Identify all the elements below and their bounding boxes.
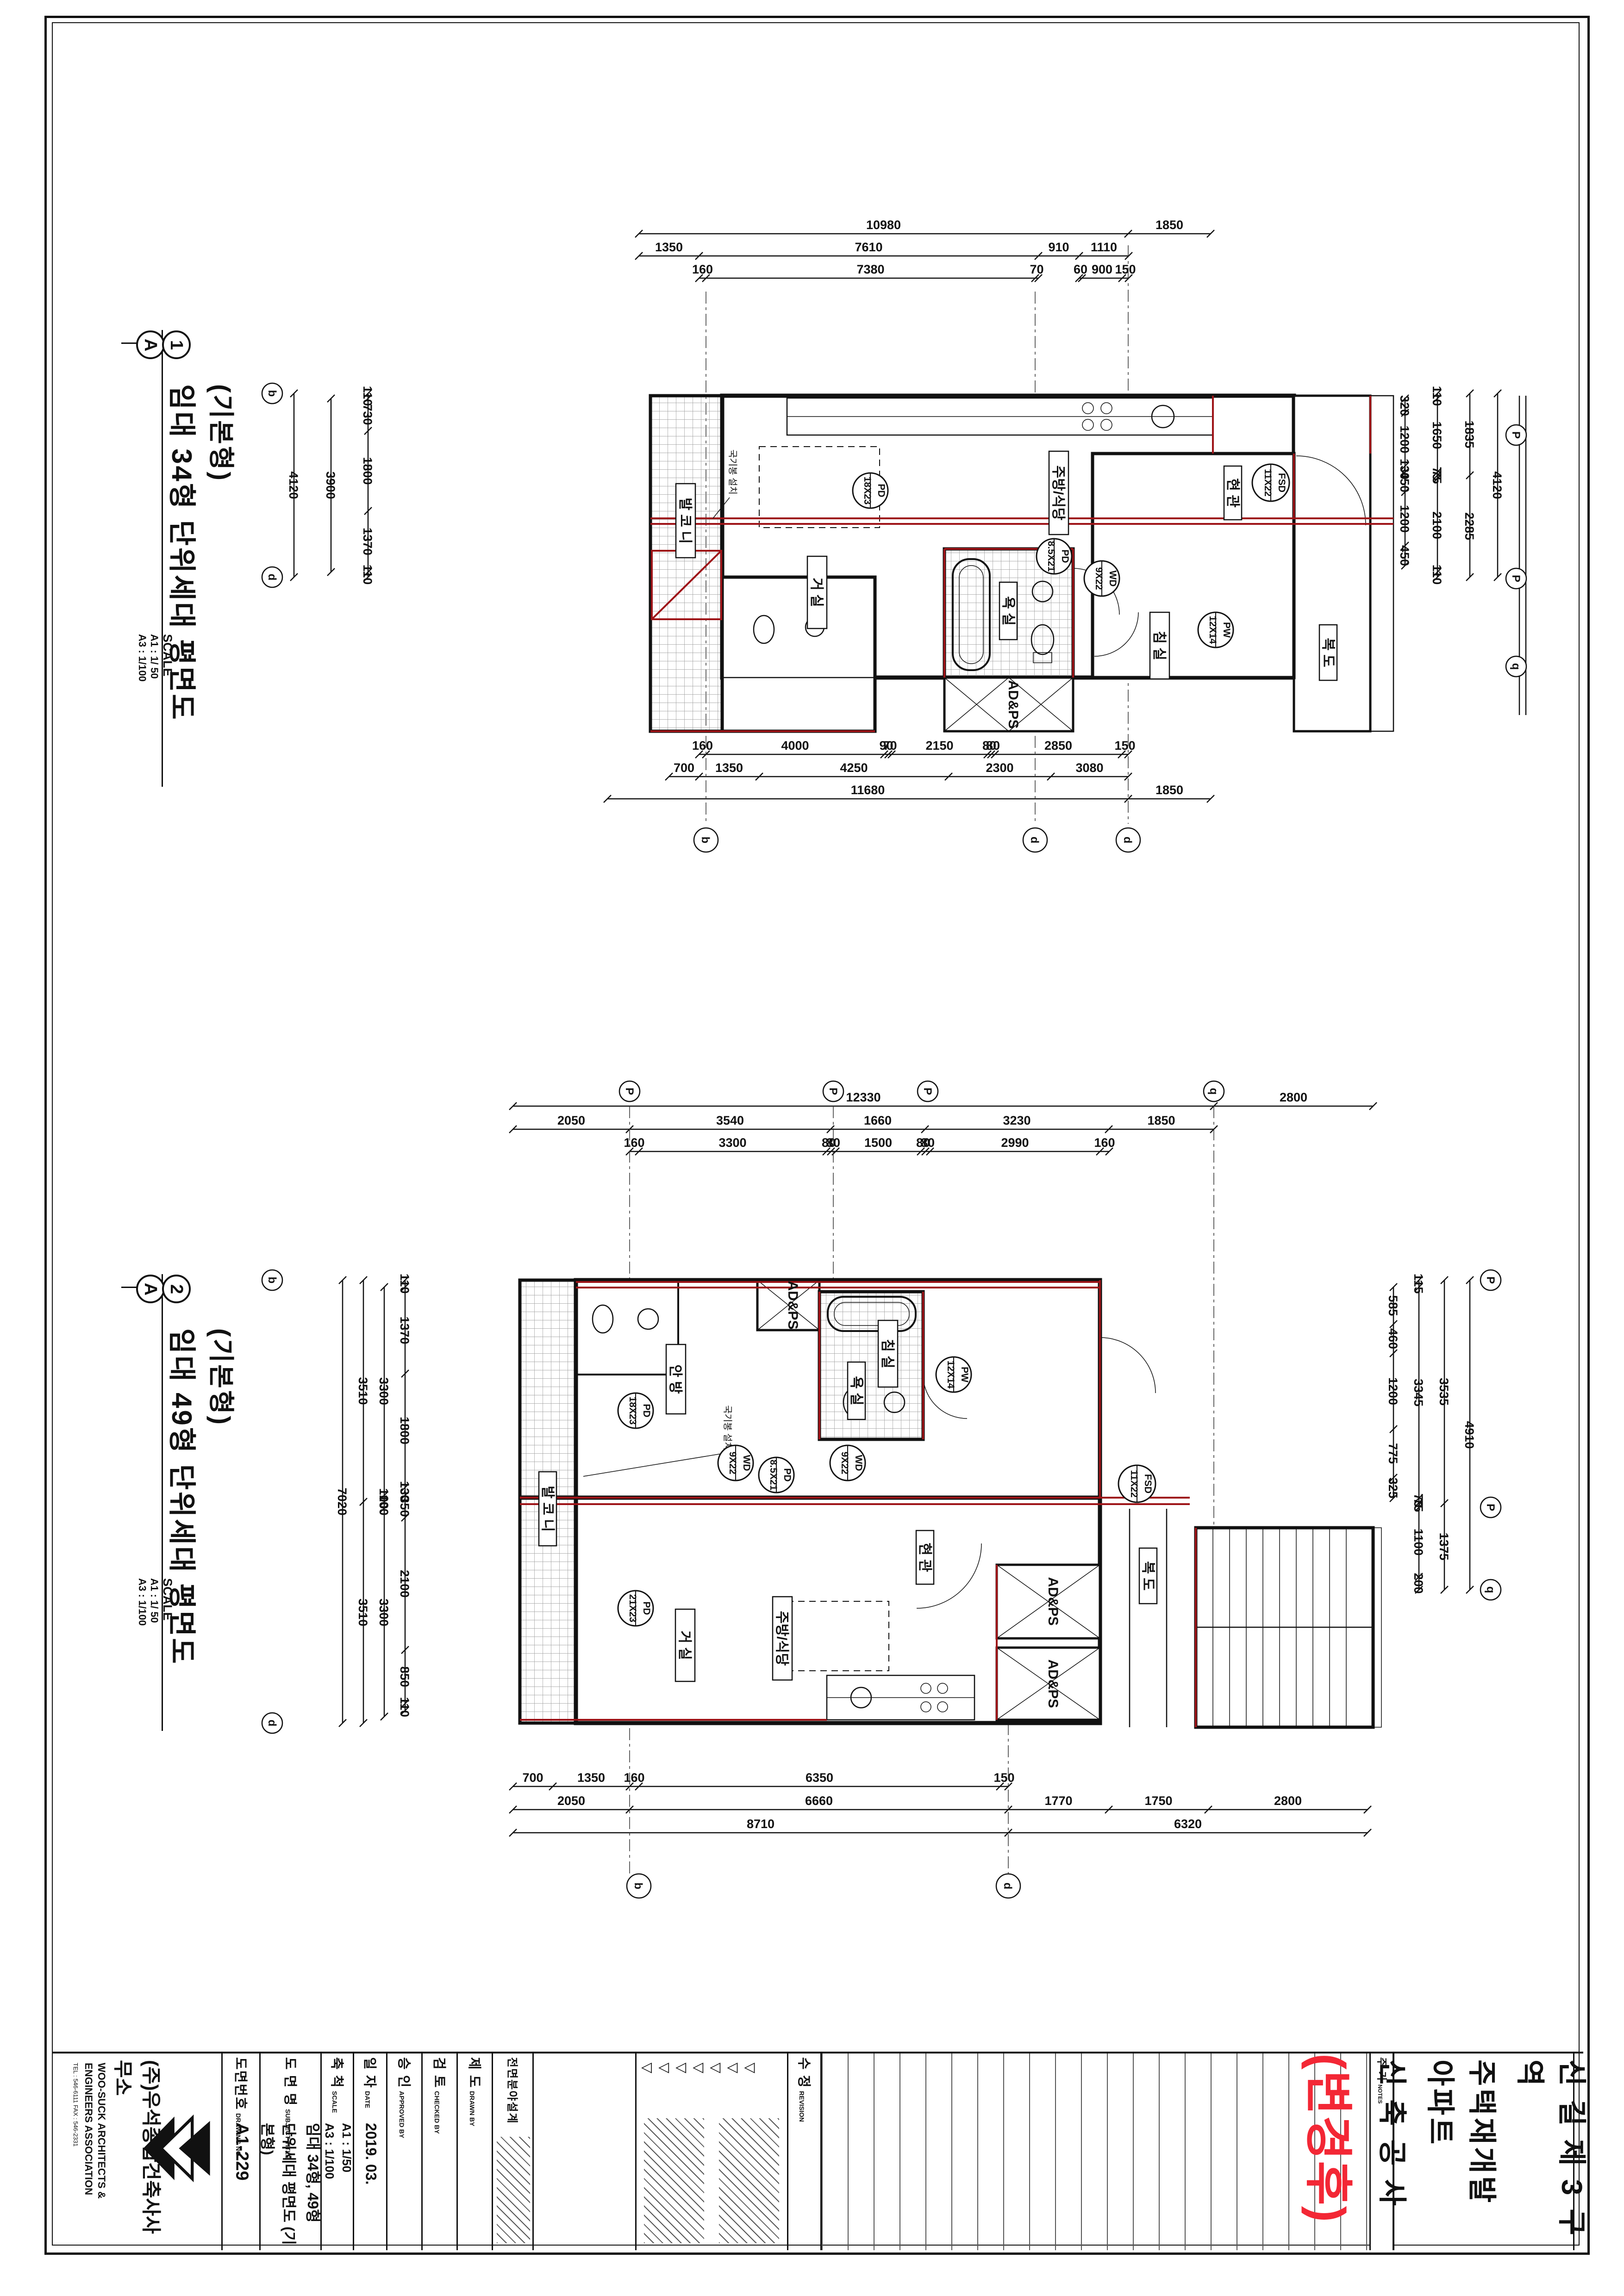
balcony-area	[650, 396, 722, 731]
bubble-letter: b	[266, 1277, 278, 1284]
plan1-scale-a1: A1 : 1/ 50	[148, 634, 160, 791]
grid-bubble: b	[262, 383, 282, 404]
discipline-label: 전면분야설계	[506, 2057, 518, 2124]
field-eng: SCALE	[331, 2091, 338, 2113]
window-tag: 8.5X21PD	[759, 1457, 794, 1493]
grid-bubble: b	[262, 1270, 282, 1290]
grid-bubble: P	[1506, 568, 1526, 589]
field-value: 2019. 03.	[360, 2123, 382, 2184]
field-header: 승 인APPROVED BY	[395, 2057, 415, 2138]
dim-label: 1850	[1156, 218, 1183, 232]
dim-label: 1350	[715, 761, 743, 775]
plan2-dims-top2: 20503540166032301850	[509, 1114, 1218, 1133]
bubble-letter: P	[921, 1088, 934, 1095]
plan1-detail-number-text: 1	[166, 340, 186, 349]
room-label-text: 발 코 니	[677, 498, 693, 543]
bubble-letter: b	[699, 837, 712, 844]
tag-size: 9X22	[727, 1451, 738, 1474]
room-label-entry: 현 관	[1224, 466, 1242, 520]
field-eng: REVISION	[798, 2091, 806, 2122]
plan2-dims-top3: 16033008080150080802990160	[624, 1136, 1115, 1155]
bubble-letter: d	[1001, 1883, 1014, 1890]
dim-label: 1660	[864, 1114, 892, 1127]
door-tag: 11X22FSD	[1118, 1465, 1156, 1502]
plan2-dims-right4: 4910	[1462, 1276, 1476, 1593]
room-label-text: 현 관	[1225, 478, 1240, 508]
revision-marks-cell: ◁◁◁◁◁◁◁	[635, 2053, 788, 2250]
dim-label: 585	[1386, 1295, 1400, 1316]
flagpole-note: 국기봉 설치	[722, 1405, 733, 1450]
grid-bubble: d	[1023, 828, 1047, 852]
dim-label: 1370	[361, 528, 375, 555]
dim-label: 2100	[398, 1570, 412, 1598]
dim-label: 6660	[805, 1794, 833, 1808]
shaft-label: AD&PS	[785, 1281, 800, 1329]
room-label-text: 주방/식당	[774, 1611, 789, 1666]
dim-label: 110	[398, 1274, 412, 1294]
bubble-letter: q	[1484, 1587, 1497, 1593]
company-cell: TEL : 546-6111 FAX : 546-2331 ENGINEERS …	[52, 2053, 221, 2250]
dim-label: 8710	[747, 1817, 775, 1831]
bubble-letter: P	[1484, 1276, 1497, 1284]
plan2-floor-plan: 123302800 20503540166032301850 160330080…	[259, 1078, 1528, 1967]
dim-label: 1800	[398, 1417, 412, 1444]
dim-label: 450	[1398, 545, 1412, 566]
dim-label: 900	[1092, 262, 1112, 276]
dim-label: 12330	[846, 1090, 881, 1104]
project-name-cell: 신 길 제 3 구 역 주택재개발 아파트 신 축 공 사	[1393, 2053, 1575, 2250]
bubble-letter: P	[827, 1088, 839, 1095]
door-tag: 11X22FSD	[1252, 464, 1289, 501]
bubble-letter: d	[1121, 837, 1134, 844]
dim-label: 1100	[1412, 1529, 1425, 1556]
bathroom	[819, 1292, 923, 1439]
revision-header-cell: 수 정REVISION	[787, 2053, 822, 2250]
tag-size: 11X22	[1262, 469, 1273, 497]
scale-a3: A3 : 1/100	[322, 2123, 337, 2179]
window-tag: 18X23PD	[618, 1393, 653, 1428]
field-header: 전면분야설계	[506, 2057, 522, 2124]
room-label-entry: 현 관	[916, 1531, 934, 1584]
tag-code: FSD	[1276, 473, 1287, 492]
dim-label: 1500	[864, 1136, 892, 1150]
dim-label: 1350	[655, 240, 683, 254]
dim-label: 775	[1386, 1443, 1400, 1464]
grid-bubble: P	[823, 1081, 843, 1101]
room-label-kitchen: 주방/식당	[773, 1597, 792, 1680]
company-eng1: WOO-SUCK ARCHITECTS &	[95, 2063, 107, 2243]
dim-label: 200	[1412, 1573, 1425, 1593]
dim-label: 730	[361, 404, 375, 425]
dim-label: 110	[1430, 565, 1444, 585]
plan1-dims-top1: 109801850	[635, 218, 1214, 237]
tag-code: PD	[782, 1468, 793, 1481]
room-label-text: 복 도	[1320, 638, 1336, 667]
room-label-bed: 침 실	[878, 1320, 898, 1387]
field-eng: APPROVED BY	[398, 2091, 406, 2138]
dim-label: 350	[398, 1496, 412, 1517]
dim-label: 4120	[287, 471, 300, 499]
field-kor: 제 도	[467, 2057, 481, 2088]
grid-bubble: P	[918, 1081, 938, 1101]
tag-code: WD	[741, 1455, 752, 1471]
field-kor: 도면번호	[233, 2057, 248, 2110]
bubble-letter: P	[1484, 1504, 1497, 1511]
field-kor: 도 면 명	[282, 2057, 297, 2106]
dim-label: 3300	[718, 1136, 746, 1150]
plan2-dims-left3: 35103510	[356, 1276, 370, 1727]
field-header: 축 척SCALE	[328, 2057, 348, 2113]
dim-label: 3510	[356, 1377, 370, 1405]
grid-bubble: d	[1116, 828, 1140, 852]
dim-label: 115	[1412, 1274, 1425, 1294]
corridor-wall-hatch	[1370, 396, 1393, 731]
scale-a1: A1 : 1/50	[339, 2123, 354, 2179]
project-line2: 주택재개발 아파트	[1422, 2060, 1505, 2245]
dim-label: 70	[883, 739, 897, 753]
dim-label: 110	[361, 386, 375, 406]
dim-label: 4120	[1490, 471, 1504, 499]
room-label-text: 안 방	[668, 1364, 683, 1394]
dim-label: 1850	[1147, 1114, 1175, 1127]
tag-code: PD	[641, 1404, 652, 1417]
grid-bubble: d	[262, 1713, 282, 1733]
window-tag: 9X22WD	[718, 1445, 753, 1481]
tag-code: FSD	[1143, 1474, 1153, 1493]
dim-label: 6350	[806, 1771, 833, 1785]
plan2-section-marker: A	[136, 1275, 165, 1303]
dim-label: 450	[1398, 472, 1412, 492]
dim-label: 1200	[1398, 505, 1412, 533]
dim-label: 1835	[1462, 420, 1476, 448]
field-header: 일 자DATE	[361, 2057, 381, 2109]
plan1-dims-bottom1: 16040009070215080802850150	[692, 739, 1136, 758]
field-value: A1-229	[229, 2123, 255, 2181]
revision-triangles: ◁◁◁◁◁◁◁	[641, 2059, 762, 2075]
room-label-bed: 침 실	[1150, 612, 1169, 679]
plan2-dims-left4: 7020	[335, 1276, 349, 1727]
grid-bubble: b	[694, 828, 718, 852]
plan1-dims-left1: 11073018001370110	[361, 386, 375, 585]
flagpole-note: 국기봉 설치	[727, 449, 738, 495]
room-label-text: 주방/식당	[1050, 466, 1066, 521]
dim-label: 1850	[1156, 783, 1183, 797]
grid-bubble: P	[1506, 425, 1526, 445]
dim-label: 7380	[856, 262, 884, 276]
dim-label: 10980	[866, 218, 901, 232]
drawn-cell: 제 도DRAWN BY	[456, 2053, 493, 2250]
plan2-dims-bottom2: 20506660177017502800	[509, 1794, 1371, 1813]
plan2-scale-label: SCALE	[160, 1578, 175, 1736]
dim-label: 2300	[986, 761, 1013, 775]
tag-size: 18X23	[862, 477, 873, 505]
window-tag: 12X14PW	[1198, 612, 1233, 647]
date-value: 2019. 03.	[362, 2123, 380, 2184]
plan1-dims-top3b: 60900150	[1074, 262, 1136, 282]
grid-bubble: P	[1480, 1497, 1501, 1518]
dim-label: 160	[692, 262, 713, 276]
room-label-text: 거 실	[809, 578, 824, 607]
plan2-scale-a1: A1 : 1/ 50	[148, 1578, 160, 1736]
dim-label: 3510	[356, 1599, 370, 1626]
dim-label: 150	[1115, 262, 1136, 276]
scale-cell: 축 척SCALE A1 : 1/50A3 : 1/100	[320, 2053, 354, 2250]
dim-label: 3535	[1437, 1378, 1451, 1406]
room-label-text: 발 코 니	[540, 1486, 555, 1531]
checked-cell: 검 토CHECKED BY	[421, 2053, 458, 2250]
company-logo	[139, 2104, 213, 2192]
dim-label: 110	[361, 565, 375, 585]
dim-label: 1800	[361, 457, 375, 485]
bubble-letter: P	[623, 1088, 636, 1095]
room-label-balcony: 발 코 니	[676, 484, 695, 558]
dim-label: 850	[398, 1666, 412, 1687]
tag-size: 21X23	[627, 1594, 638, 1623]
field-value: A1 : 1/50A3 : 1/100	[319, 2123, 356, 2179]
dim-label: 3300	[377, 1599, 391, 1626]
lower-bath-wing	[722, 577, 875, 731]
tag-code: WD	[853, 1455, 864, 1471]
grid-bubble: P	[1480, 1270, 1501, 1290]
field-kor: 축 척	[329, 2057, 344, 2088]
window-tag: 8.5X21PD	[1037, 539, 1072, 574]
window-tag: 12X14PW	[936, 1357, 971, 1392]
dim-label: 160	[692, 739, 713, 753]
field-kor: 검 토	[431, 2057, 446, 2088]
door-arc	[1100, 1338, 1156, 1393]
hatch-band	[497, 2137, 530, 2243]
plan1-detail-number: 1	[162, 330, 191, 359]
shaft-label: AD&PS	[1045, 1659, 1061, 1708]
changed-after-stamp: (변경후)	[1298, 2053, 1368, 2250]
dim-label: 325	[1386, 1477, 1400, 1498]
window-tag: 9X22WD	[1084, 561, 1119, 596]
dim-label: 700	[674, 761, 694, 775]
dim-label: 3540	[716, 1114, 744, 1127]
room-label-master: 안 방	[666, 1344, 686, 1414]
dim-label: 80	[986, 739, 1000, 753]
hatch-band	[719, 2118, 779, 2243]
room-label-text: 현 관	[917, 1543, 932, 1572]
bubble-letter: b	[632, 1883, 644, 1890]
hatch-band	[644, 2118, 704, 2243]
room-label-corridor: 복 도	[1139, 1548, 1157, 1604]
date-cell: 일 자DATE 2019. 03.	[353, 2053, 387, 2250]
subject-line2: 단위세대 평면도 (기본형)	[258, 2123, 300, 2250]
plan2-title: (기본형) 임대 49형 단위세대 평면도	[163, 1328, 242, 1736]
dim-label: 3345	[1412, 1379, 1425, 1406]
dim-label: 2150	[925, 739, 953, 753]
project-name: 신 길 제 3 구 역 주택재개발 아파트 신 축 공 사	[1368, 2060, 1602, 2245]
dim-label: 1110	[1091, 240, 1117, 254]
dim-label: 75	[1430, 470, 1444, 484]
plan1-section-letter: A	[140, 338, 160, 351]
window-tag: 21X23PD	[618, 1591, 653, 1626]
dim-label: 110	[1430, 386, 1444, 406]
field-value: 임대 34형, 49형단위세대 평면도 (기본형)	[255, 2123, 327, 2250]
room-label-living: 거 실	[675, 1609, 695, 1681]
room-label-balcony: 발 코 니	[539, 1472, 556, 1546]
bubble-letter: q	[1207, 1088, 1220, 1095]
dim-label: 1200	[1398, 425, 1412, 453]
field-eng: DRAWN BY	[468, 2091, 476, 2126]
notes-area: (변경후)	[820, 2053, 1371, 2250]
plan1-dims-right1: 32012001304501200450	[1398, 395, 1412, 569]
shaft-label: AD&PS	[1006, 680, 1021, 728]
dim-label: 2050	[557, 1114, 585, 1127]
room-label-text: 복 도	[1140, 1561, 1156, 1591]
plan1-section-marker: A	[136, 330, 165, 359]
grid-bubble: d	[262, 567, 282, 587]
dim-label: 910	[1048, 240, 1069, 254]
field-kor: 수 정	[796, 2057, 811, 2088]
dim-label: 2800	[1274, 1794, 1302, 1808]
dim-label: 110	[398, 1697, 412, 1717]
dim-label: 160	[624, 1136, 644, 1150]
plan1-dims-top2: 135076109101110	[635, 240, 1132, 260]
room-label-text: 욕 실	[849, 1376, 864, 1406]
dim-label: 150	[993, 1771, 1014, 1785]
dim-label: 7020	[335, 1487, 349, 1515]
dim-label: 3230	[1003, 1114, 1031, 1127]
plan1-scale-a3: A3 : 1/100	[136, 634, 148, 791]
dim-label: 7610	[855, 240, 882, 254]
dim-label: 1750	[1144, 1794, 1172, 1808]
plan2-dims-left1: 110137018001303502100850110	[398, 1274, 412, 1717]
plan2-dims-bottom3: 87106320	[509, 1817, 1371, 1836]
grid-bubble: q	[1204, 1081, 1224, 1101]
bubble-letter: d	[1028, 837, 1041, 844]
dim-label: 2100	[1430, 511, 1444, 539]
dim-label: 160	[624, 1771, 644, 1785]
discipline-cell: 전면분야설계	[492, 2053, 534, 2250]
approved-cell: 승 인APPROVED BY	[386, 2053, 423, 2250]
grid-bubble: P	[619, 1081, 640, 1101]
room-label-kitchen: 주방/식당	[1049, 451, 1068, 535]
tag-size: 18X23	[627, 1397, 638, 1425]
dim-label: 3300	[377, 1377, 391, 1405]
company-eng2: ENGINEERS ASSOCIATION	[82, 2063, 94, 2243]
room-label-text: 침 실	[1151, 631, 1167, 660]
dim-label: 1650	[1430, 421, 1444, 449]
edge-margin-cell	[1573, 2053, 1585, 2250]
dim-label: 2990	[1001, 1136, 1029, 1150]
plan1-dims-right2: 110165075752100110	[1430, 386, 1444, 585]
tag-size: 12X14	[945, 1361, 956, 1389]
tag-code: PW	[959, 1367, 970, 1382]
plan2-section-letter: A	[140, 1282, 160, 1295]
dim-label: 320	[1398, 395, 1412, 416]
tag-size: 9X22	[839, 1451, 850, 1474]
window-tag: 9X22WD	[830, 1445, 865, 1481]
grid-bubble: d	[996, 1874, 1020, 1898]
dim-label: 2285	[1462, 512, 1476, 540]
room-label-text: 거 실	[677, 1630, 692, 1660]
company-tel: TEL : 546-6111 FAX : 546-2331	[72, 2063, 79, 2243]
dim-label: 3900	[324, 471, 337, 499]
grid-bubble: b	[627, 1874, 651, 1898]
tag-size: 12X14	[1207, 616, 1218, 644]
bubble-letter: d	[266, 574, 278, 581]
field-header: 검 토CHECKED BY	[431, 2057, 450, 2134]
dim-label: 4910	[1462, 1421, 1476, 1449]
plan1-title-line1: (기본형)	[204, 384, 242, 791]
room-label-bath: 욕 실	[999, 582, 1017, 640]
plan2-scale-a3: A3 : 1/100	[136, 1578, 148, 1736]
field-header: 제 도DRAWN BY	[466, 2057, 485, 2127]
field-kor: 승 인	[396, 2057, 411, 2088]
plan1-scale: SCALE A1 : 1/ 50 A3 : 1/100	[136, 634, 175, 791]
tag-code: PD	[641, 1601, 652, 1615]
bubble-letter: P	[1510, 575, 1522, 582]
bubble-letter: d	[266, 1720, 278, 1727]
plan2-dims-right1: 5854601200775325	[1386, 1283, 1400, 1502]
plan2-dims-right2: 115334575751100200	[1412, 1274, 1425, 1594]
dim-label: 1375	[1437, 1532, 1451, 1560]
tag-size: 8.5X21	[768, 1460, 779, 1491]
dim-label: 75	[1412, 1498, 1425, 1512]
bubble-letter: q	[1510, 663, 1522, 670]
room-label-text: 욕 실	[1000, 596, 1016, 626]
window-tag: 18X23PD	[853, 473, 888, 508]
tag-size: 11X22	[1129, 1470, 1139, 1498]
subject-title-cell: 도 면 명SUBJECT TITLE 임대 34형, 49형단위세대 평면도 (…	[259, 2053, 322, 2250]
field-eng: CHECKED BY	[433, 2091, 441, 2134]
plan1-dims-left3: 4120	[287, 390, 300, 581]
dim-label: 150	[1114, 739, 1135, 753]
field-eng: DATE	[364, 2091, 371, 2108]
dim-label: 700	[522, 1771, 543, 1785]
plan2-dims-right3: 35351375	[1437, 1276, 1451, 1593]
dim-label: 4250	[840, 761, 868, 775]
plan1-dims-bottom3: 116801850	[604, 783, 1214, 803]
dim-label: 70	[1030, 262, 1043, 276]
plan1-dims-top3: 160738070	[692, 262, 1044, 282]
bubble-letter: P	[1510, 431, 1522, 439]
dim-label: 2800	[1280, 1090, 1307, 1104]
title-block: TEL : 546-6111 FAX : 546-2331 ENGINEERS …	[52, 2052, 1583, 2250]
plan1-dims-bottom2: 7001350425023003080	[665, 761, 1132, 780]
plan1-scale-label: SCALE	[160, 634, 175, 791]
dim-label: 160	[1094, 1136, 1115, 1150]
tag-code: PD	[876, 484, 887, 497]
tag-code: WD	[1107, 571, 1118, 587]
plan1-floor-plan: 109801850 135076109101110 160738070 6090…	[259, 194, 1528, 889]
plan2-dims-left2: 33001001003300	[377, 1283, 391, 1720]
tag-size: 9X22	[1093, 567, 1104, 590]
dim-label: 1770	[1044, 1794, 1072, 1808]
tag-code: PD	[1060, 549, 1070, 563]
plan1-dims-right4: 4120	[1490, 390, 1504, 581]
plan2-title-line1: (기본형)	[204, 1328, 242, 1736]
room-label-living: 거 실	[807, 556, 827, 628]
drawing-sheet: A 1 (기본형) 임대 34형 단위세대 평면도 SCALE A1 : 1/ …	[0, 0, 1624, 2296]
plan1-title: (기본형) 임대 34형 단위세대 평면도	[163, 384, 242, 791]
blank-cell	[532, 2053, 637, 2250]
room-label-corridor: 복 도	[1319, 625, 1337, 680]
room-label-bath: 욕 실	[848, 1362, 865, 1419]
dim-label: 11680	[851, 783, 885, 797]
room-label-text: 침 실	[880, 1339, 895, 1369]
field-kor: 일 자	[362, 2057, 377, 2088]
dim-label: 80	[921, 1136, 935, 1150]
dim-label: 60	[1074, 262, 1087, 276]
dim-label: 2050	[557, 1794, 585, 1808]
field-header: 수 정REVISION	[795, 2057, 815, 2122]
dim-label: 1200	[1386, 1377, 1400, 1405]
dim-label: 4000	[781, 739, 809, 753]
plan2-scale: SCALE A1 : 1/ 50 A3 : 1/100	[136, 1578, 175, 1736]
